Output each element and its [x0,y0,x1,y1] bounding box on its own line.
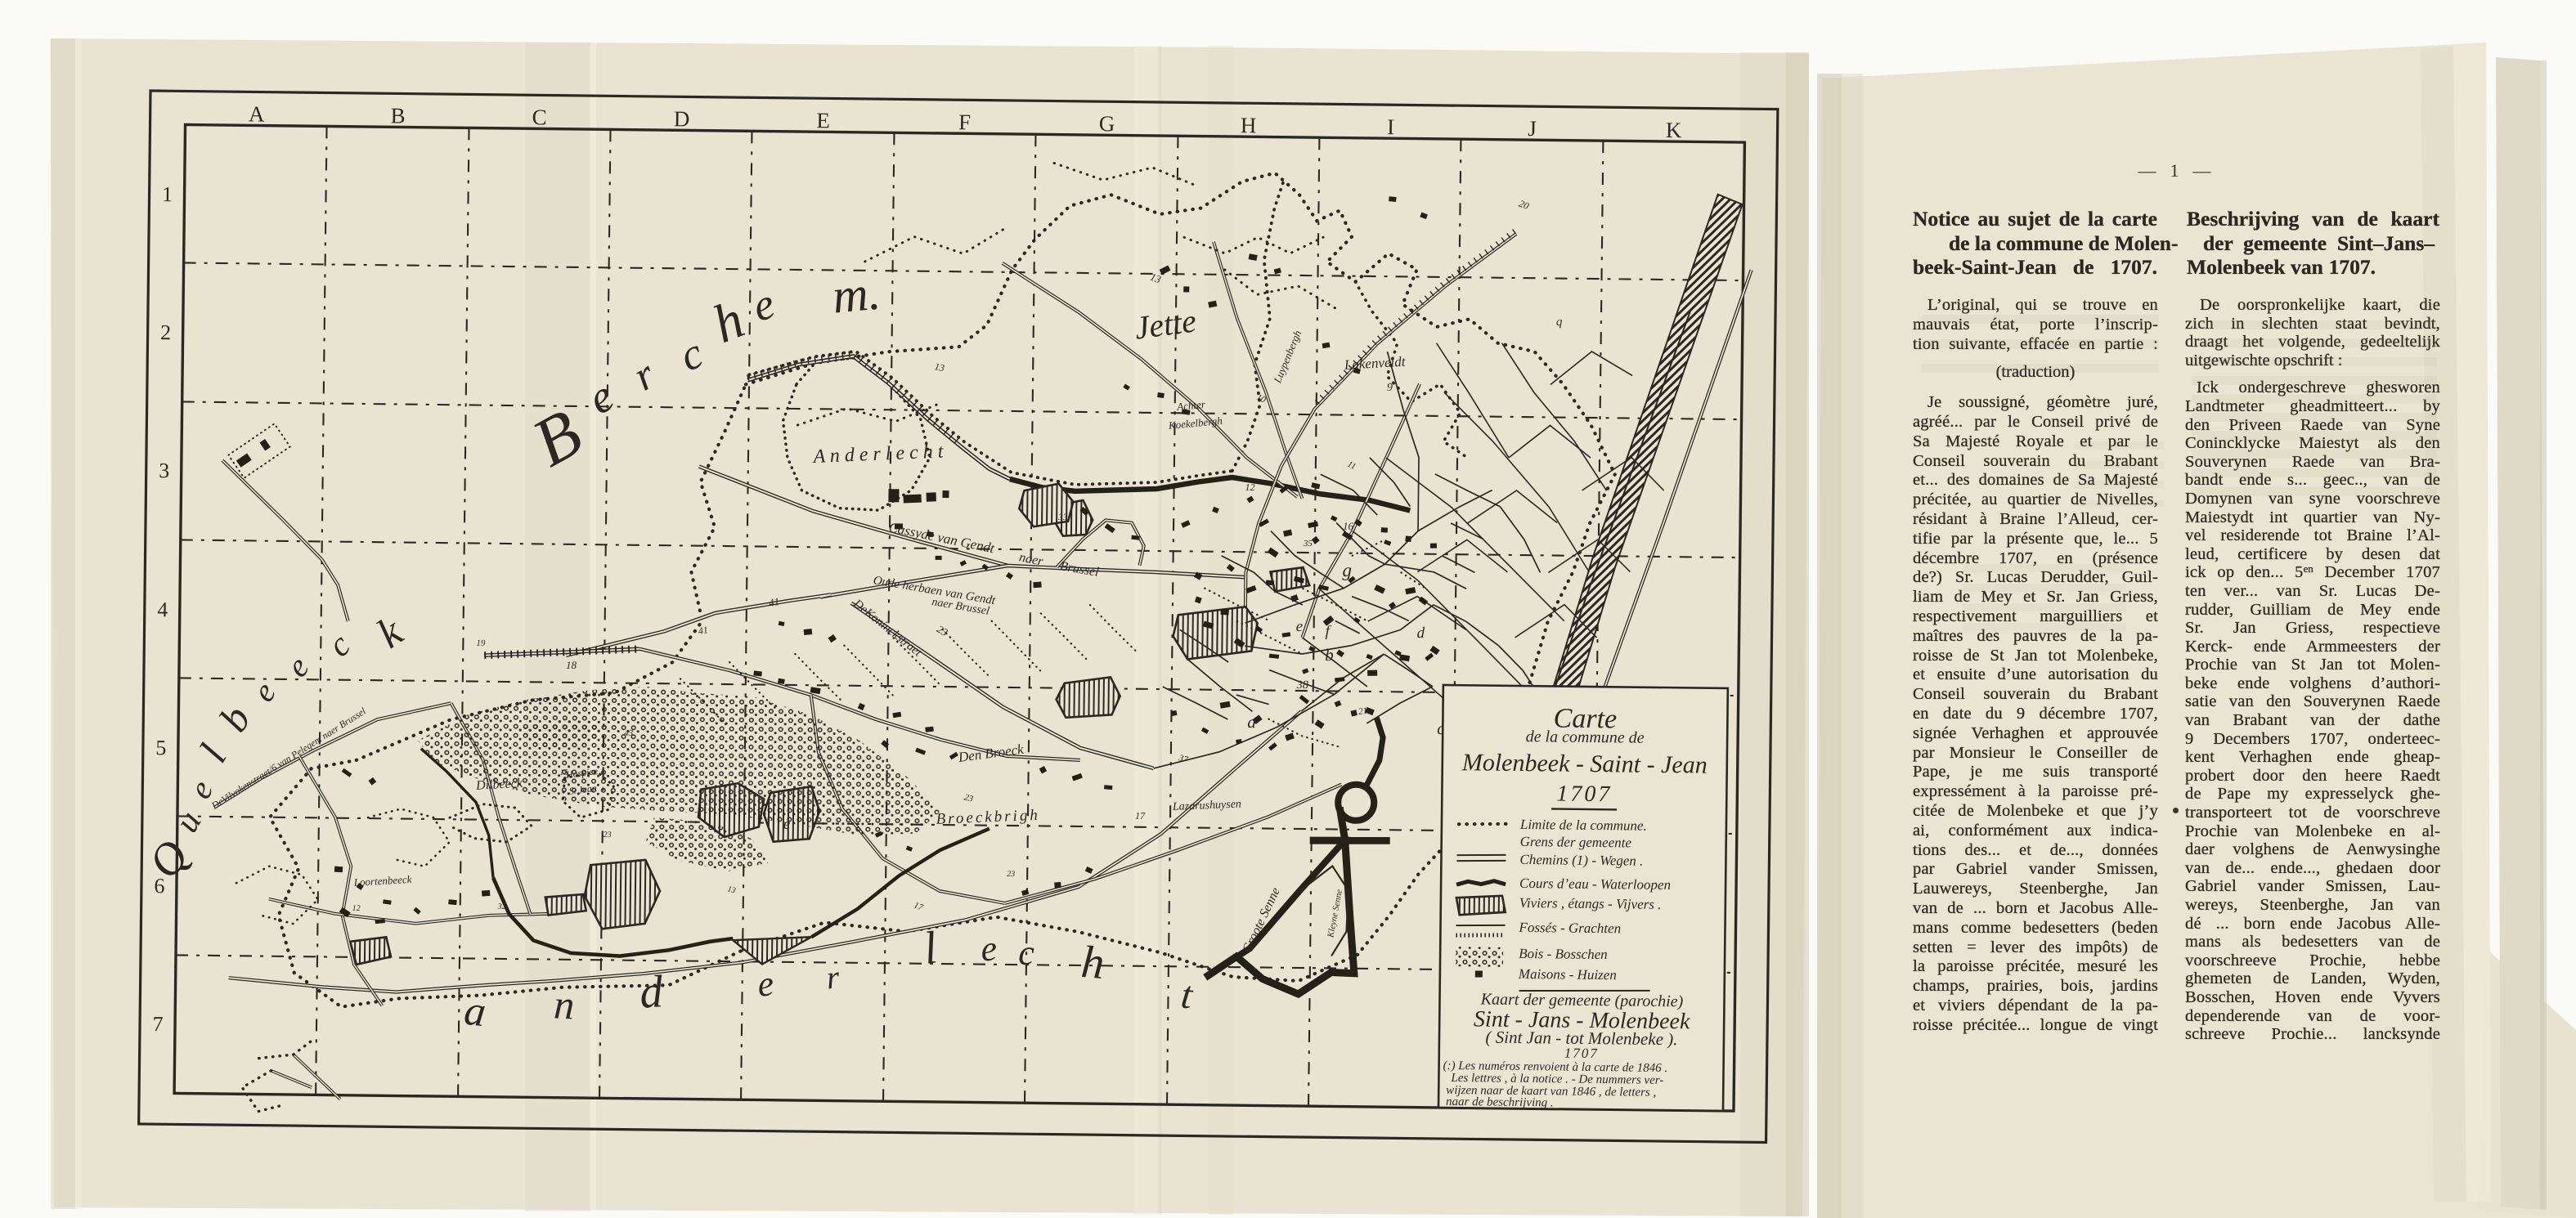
svg-text:6: 6 [154,874,164,898]
svg-text:e: e [1296,618,1304,635]
svg-text:3: 3 [159,459,169,482]
svg-text:Dilbeeck: Dilbeeck [475,777,524,793]
svg-text:21: 21 [1358,706,1367,717]
svg-text:12: 12 [352,904,361,913]
svg-text:Limite de la commune.: Limite de la commune. [1519,817,1647,834]
svg-text:G: G [1099,111,1115,136]
svg-text:33: 33 [1057,513,1068,522]
svg-text:16: 16 [1343,520,1354,532]
svg-text:13: 13 [934,360,945,374]
svg-text:38: 38 [1296,679,1308,692]
svg-text:23: 23 [604,831,612,840]
svg-text:g: g [1342,560,1352,580]
svg-text:Molenbeek - Saint - Jean: Molenbeek - Saint - Jean [1461,749,1708,778]
svg-text:Cours d’eau - Waterloopen: Cours d’eau - Waterloopen [1519,875,1671,893]
svg-text:B: B [390,103,405,128]
svg-text:q: q [1556,316,1563,329]
svg-text:Maisons - Huizen: Maisons - Huizen [1518,966,1617,983]
svg-text:b: b [1325,645,1334,665]
svg-text:E: E [816,108,830,132]
svg-text:5: 5 [155,736,166,759]
svg-text:23: 23 [1007,870,1015,879]
svg-text:K: K [1666,118,1682,142]
svg-text:18: 18 [566,659,577,671]
svg-text:a: a [1247,712,1256,732]
svg-text:Viviers , étangs - Vijvers .: Viviers , étangs - Vijvers . [1519,895,1662,912]
svg-text:h: h [1079,937,1106,989]
svg-text:A: A [249,101,265,126]
svg-text:9: 9 [1387,382,1393,394]
svg-text:41: 41 [698,624,709,637]
svg-text:4: 4 [157,598,168,621]
svg-text:e: e [980,928,998,969]
svg-text:I: I [1387,114,1394,139]
svg-text:Bois - Bosschen: Bois - Bosschen [1519,946,1608,962]
svg-text:d: d [1416,625,1425,642]
svg-text:Jette: Jette [1133,302,1199,346]
svg-text:Fossés - Grachten: Fossés - Grachten [1518,920,1621,936]
svg-text:Grens der gemeente: Grens der gemeente [1520,834,1632,851]
svg-text:2: 2 [160,320,171,344]
svg-text:12: 12 [1245,481,1255,493]
svg-text:D: D [674,106,690,131]
svg-text:n: n [553,981,576,1028]
svg-text:e: e [783,816,791,833]
svg-text:F: F [958,110,971,134]
svg-text:41: 41 [768,595,780,609]
svg-text:H: H [1241,113,1257,137]
svg-text:de la commune de: de la commune de [1526,728,1645,747]
svg-text:19: 19 [476,638,486,648]
svg-text:naar de beschrijving .: naar de beschrijving . [1446,1095,1554,1109]
svg-text:m.: m. [830,265,882,323]
svg-text:32: 32 [497,902,506,911]
svg-text:1: 1 [162,182,173,206]
svg-text:17: 17 [1135,810,1146,822]
svg-text:J: J [1528,116,1537,141]
svg-text:Chemins (1) - Wegen .: Chemins (1) - Wegen . [1519,852,1643,869]
svg-text:C: C [532,105,546,129]
svg-text:43: 43 [624,728,634,738]
svg-text:35: 35 [1303,539,1313,549]
svg-text:1707: 1707 [1564,1046,1599,1061]
svg-text:7: 7 [152,1012,163,1036]
svg-text:15: 15 [560,768,568,777]
svg-text:c: c [1018,933,1035,973]
svg-text:1707: 1707 [1556,781,1612,808]
